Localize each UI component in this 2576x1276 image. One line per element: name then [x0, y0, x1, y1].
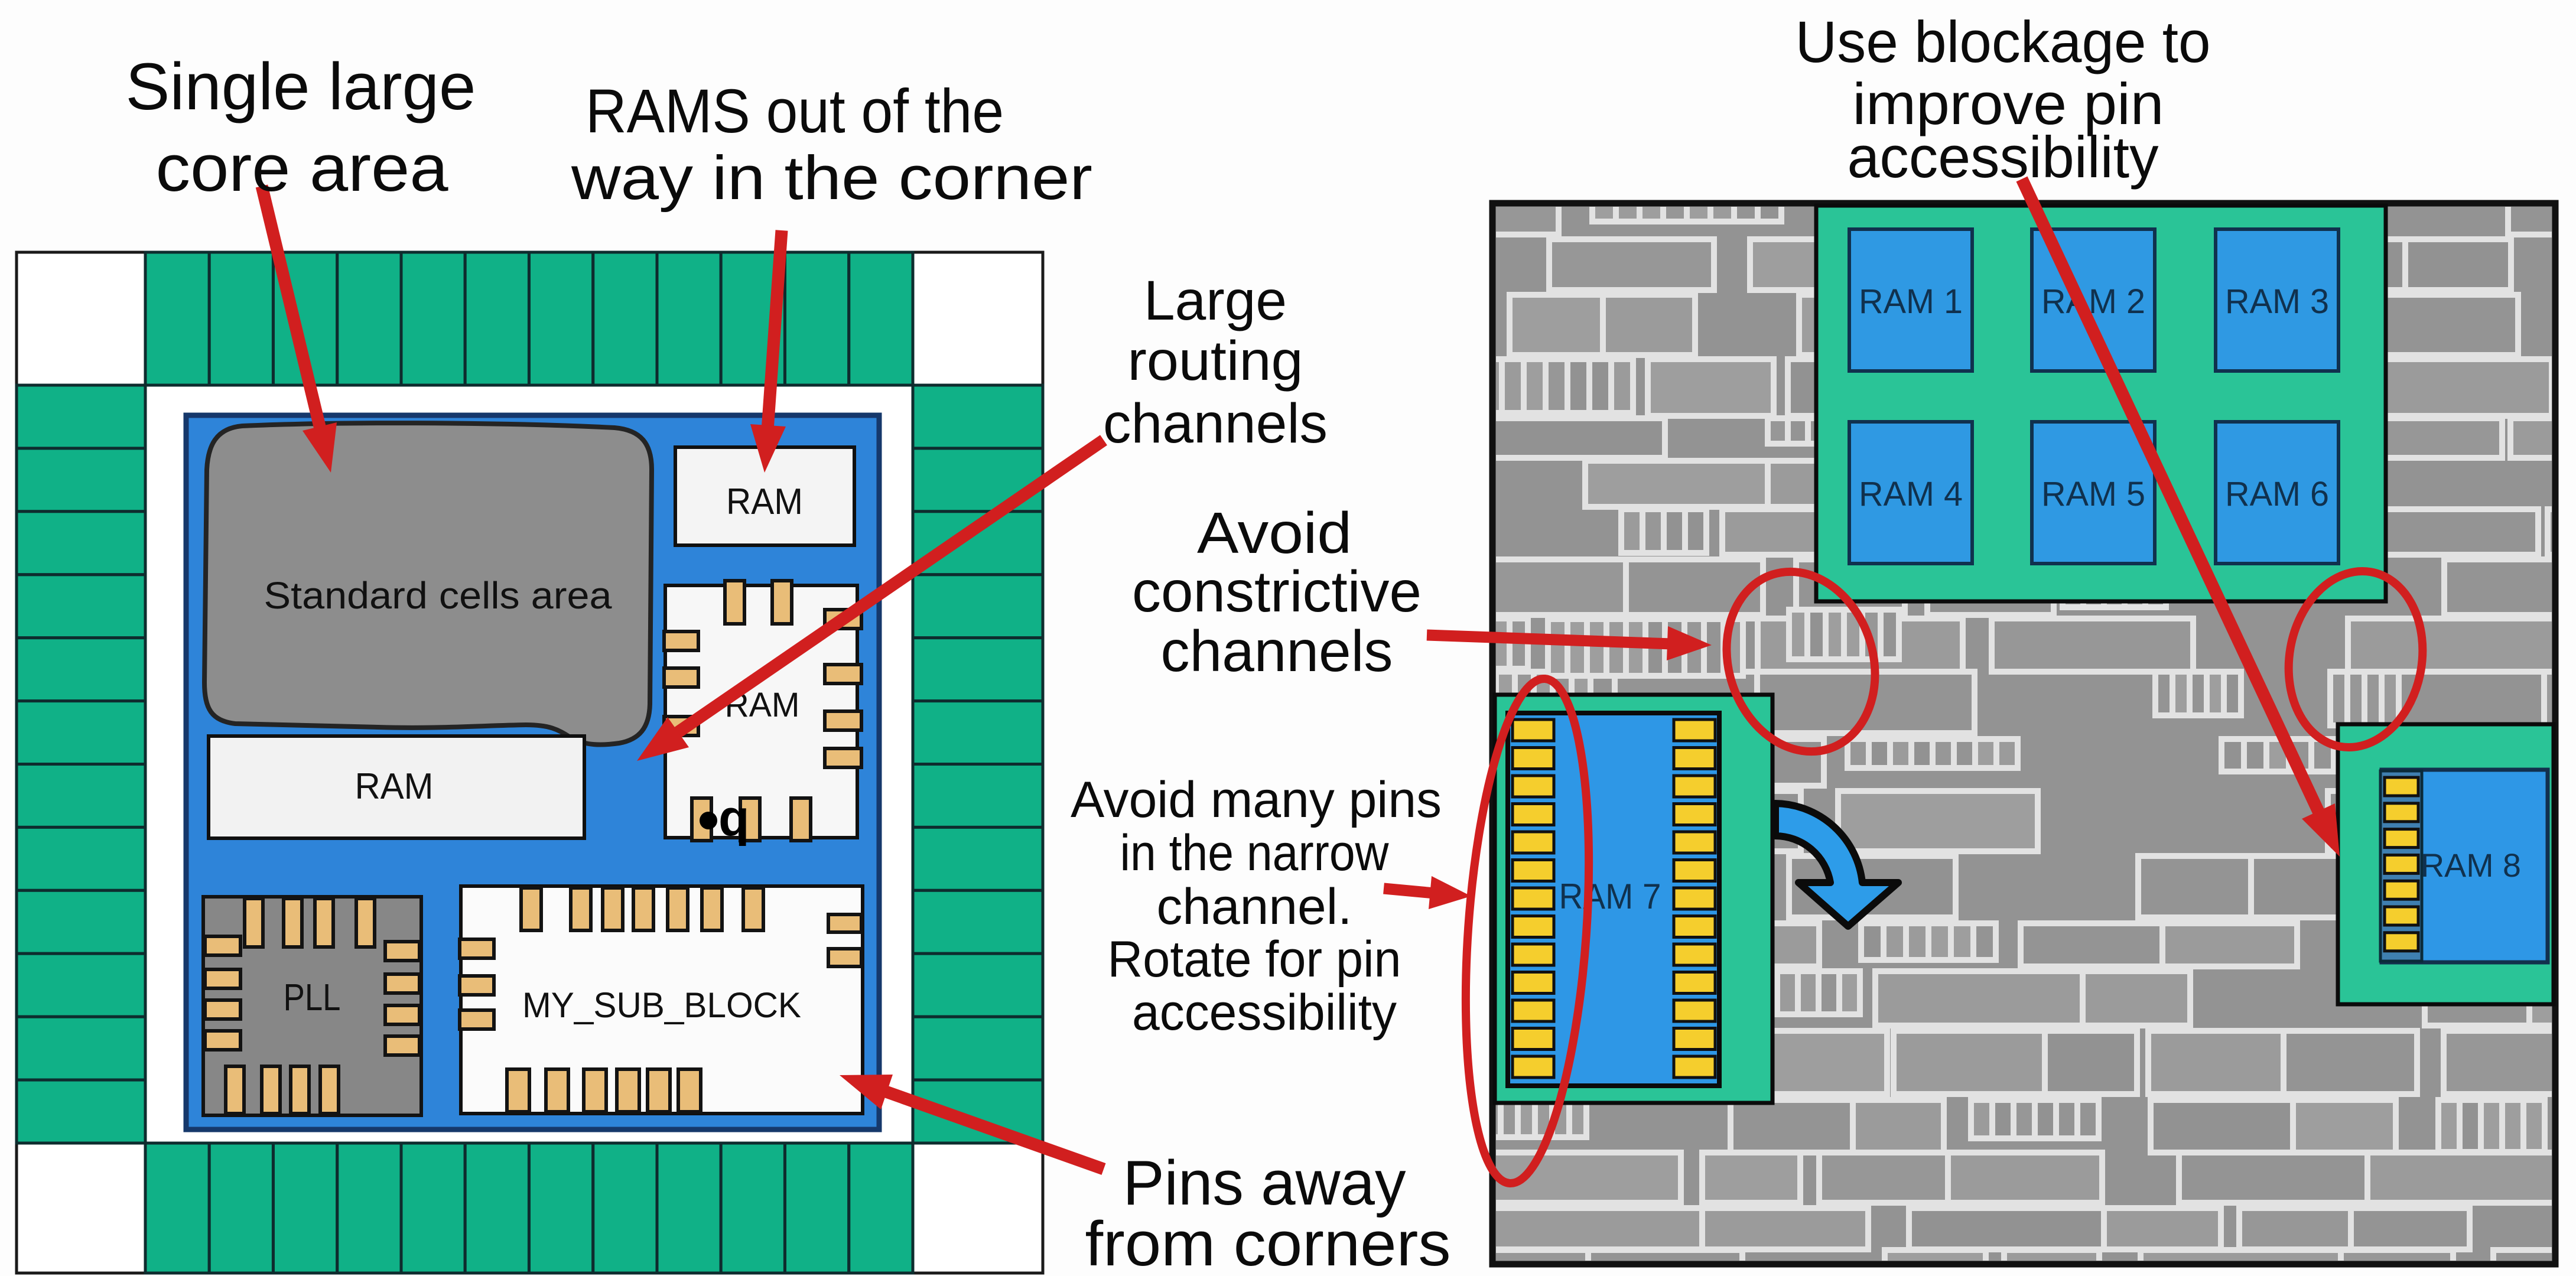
svg-text:Use blockage to: Use blockage to	[1796, 9, 2211, 74]
svg-text:routing: routing	[1128, 330, 1303, 392]
svg-text:constrictive: constrictive	[1132, 559, 1422, 624]
svg-text:channel.: channel.	[1157, 878, 1352, 935]
svg-text:channels: channels	[1161, 619, 1393, 683]
svg-text:RAM 3: RAM 3	[2225, 282, 2329, 321]
svg-text:from corners: from corners	[1085, 1208, 1451, 1276]
svg-text:RAMS out of the: RAMS out of the	[586, 77, 1004, 146]
svg-text:Rotate for pin: Rotate for pin	[1108, 931, 1401, 988]
svg-text:RAM 7: RAM 7	[1559, 877, 1661, 916]
svg-text:Standard cells area: Standard cells area	[264, 574, 612, 617]
svg-text:channels: channels	[1103, 392, 1328, 455]
svg-text:RAM: RAM	[355, 766, 434, 807]
svg-text:RAM 8: RAM 8	[2421, 847, 2521, 884]
svg-text:way in the corner: way in the corner	[571, 144, 1092, 213]
svg-text:accessibility: accessibility	[1132, 984, 1397, 1041]
svg-text:q: q	[718, 790, 750, 847]
svg-text:MY_SUB_BLOCK: MY_SUB_BLOCK	[522, 985, 801, 1025]
svg-text:RAM 1: RAM 1	[1859, 282, 1963, 321]
svg-text:in the narrow: in the narrow	[1120, 825, 1390, 881]
svg-text:Large: Large	[1144, 269, 1287, 332]
svg-text:RAM 6: RAM 6	[2225, 475, 2329, 513]
svg-text:Avoid many pins: Avoid many pins	[1071, 772, 1442, 828]
svg-text:Single large: Single large	[126, 50, 476, 123]
svg-text:accessibility: accessibility	[1848, 124, 2159, 190]
svg-text:Avoid: Avoid	[1197, 500, 1352, 565]
svg-text:PLL: PLL	[284, 976, 341, 1018]
svg-text:core area: core area	[156, 131, 449, 205]
svg-text:RAM: RAM	[726, 481, 803, 522]
svg-text:RAM 2: RAM 2	[2041, 282, 2145, 321]
svg-text:Pins away: Pins away	[1123, 1147, 1406, 1218]
svg-text:RAM 5: RAM 5	[2041, 475, 2145, 513]
svg-text:RAM 4: RAM 4	[1859, 475, 1963, 513]
